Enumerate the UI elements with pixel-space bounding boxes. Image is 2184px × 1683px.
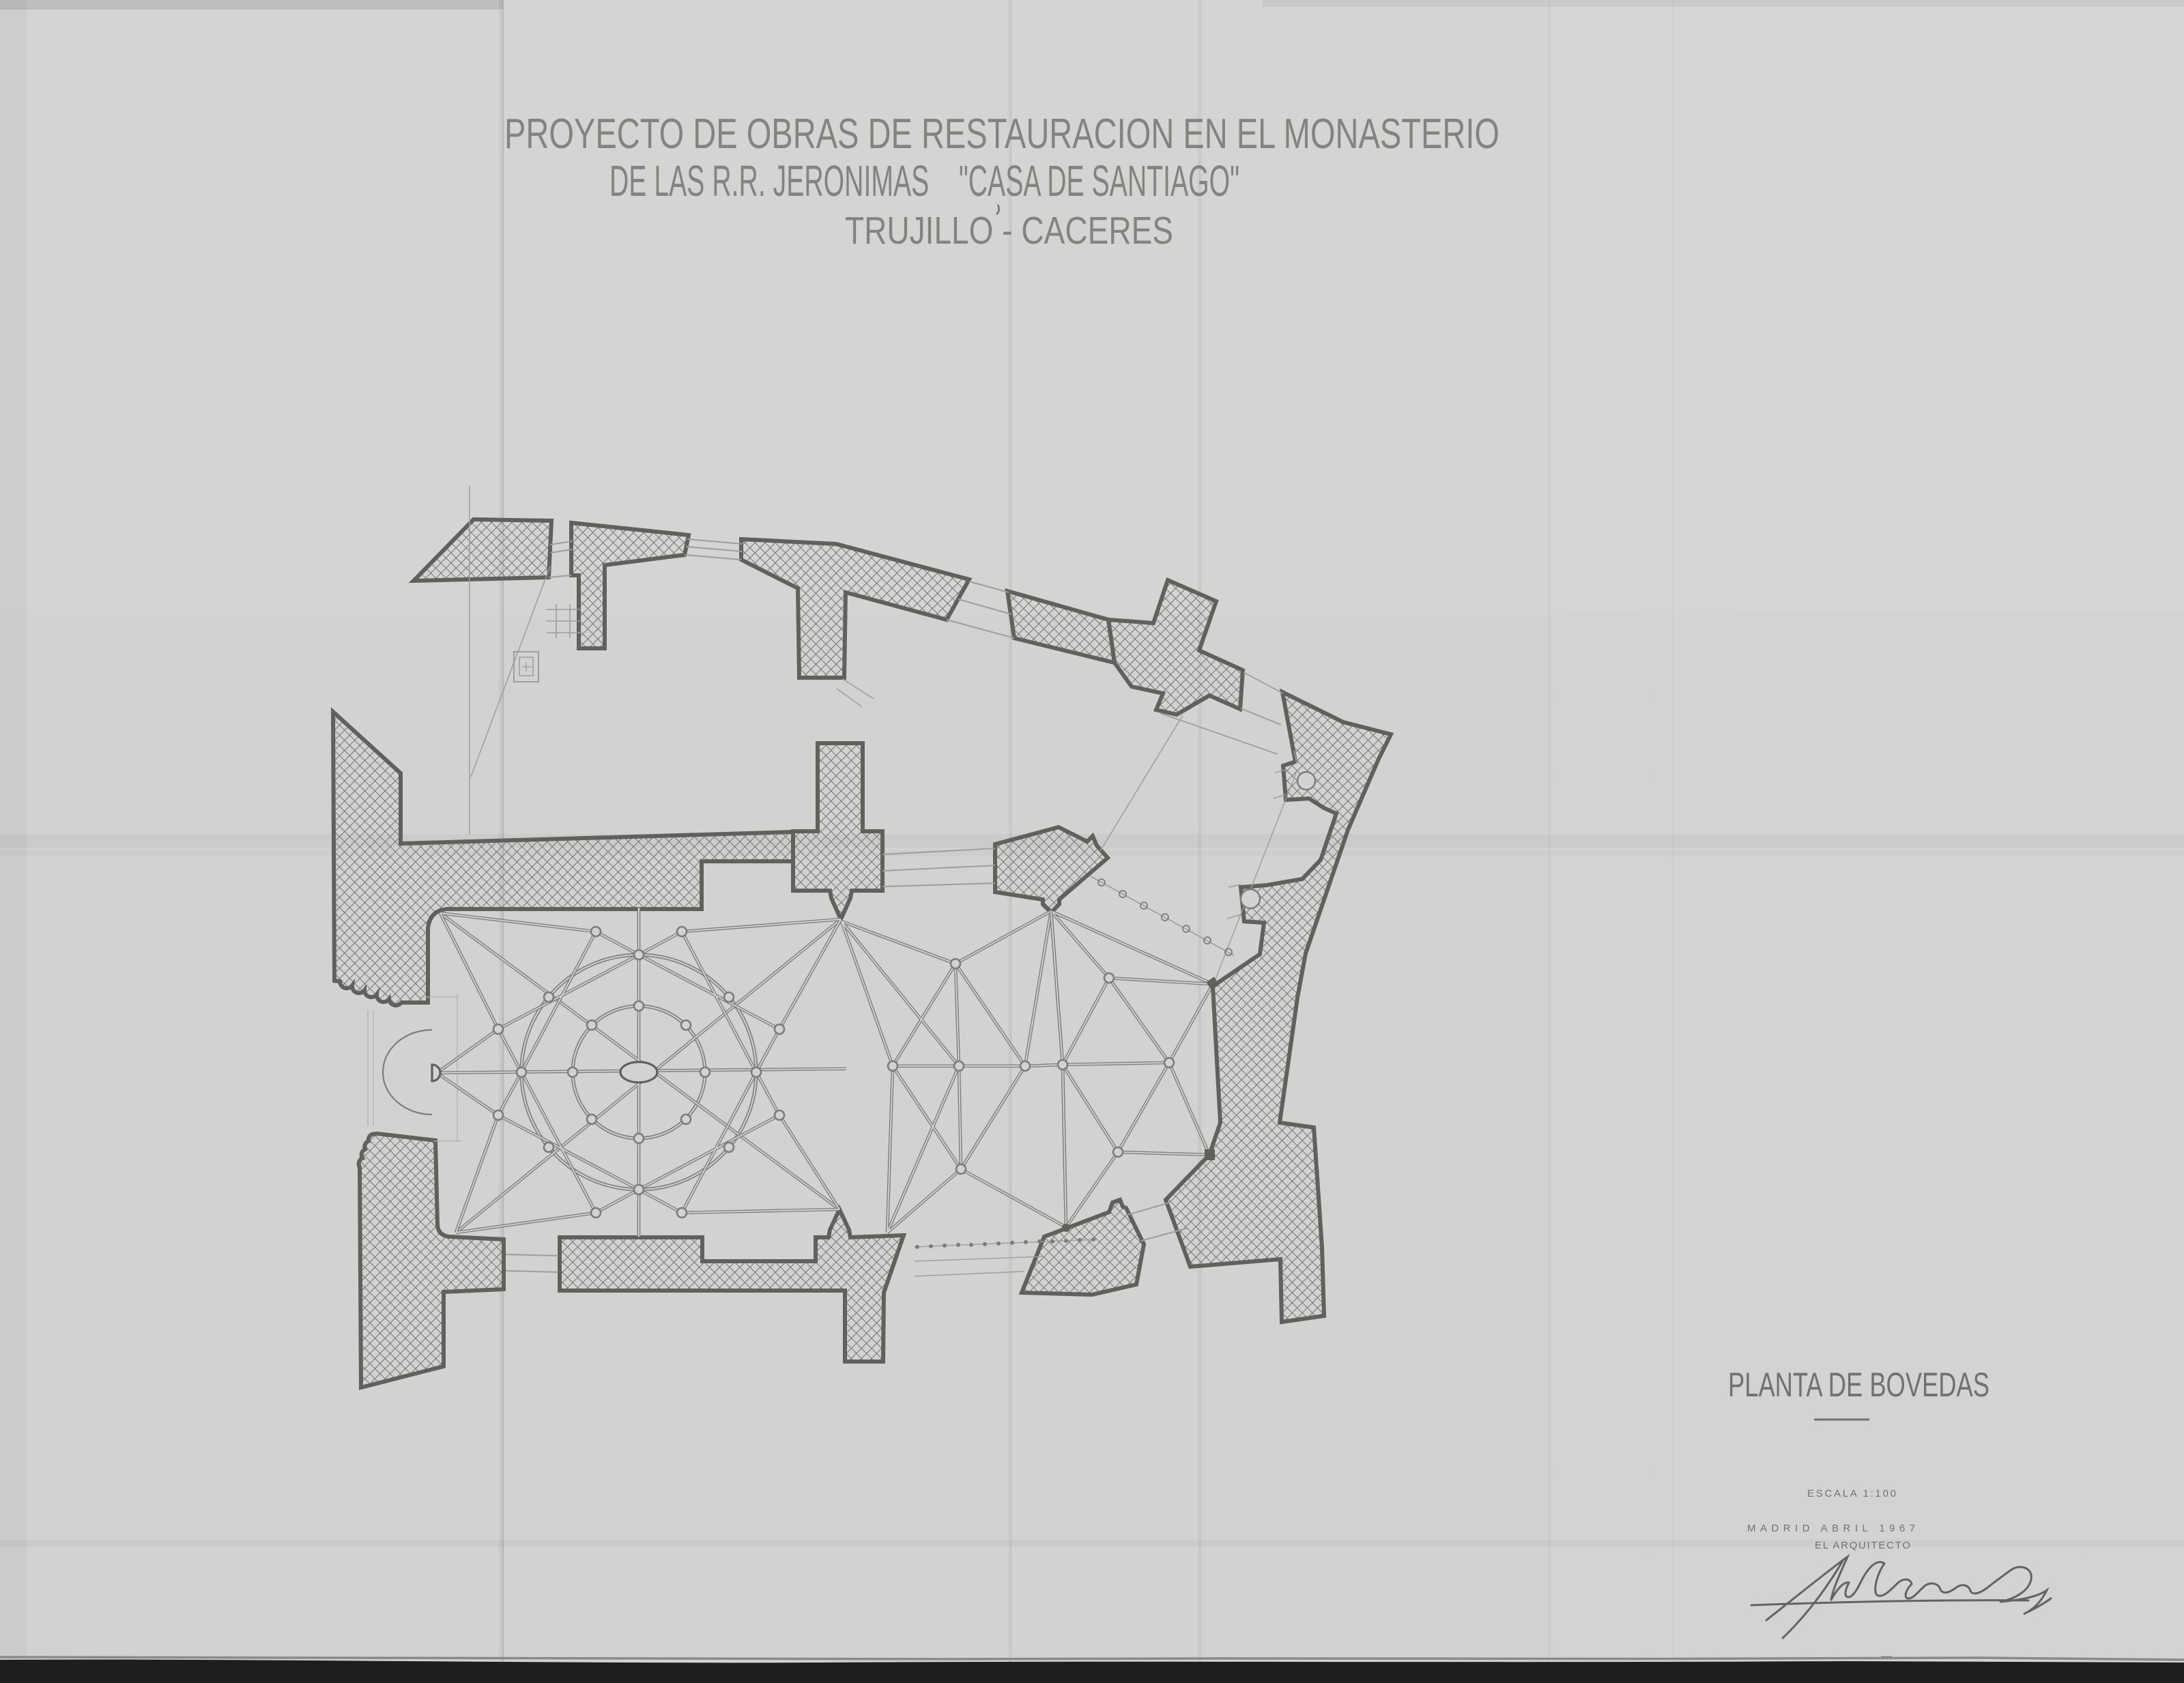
svg-text:EL ARQUITECTO: EL ARQUITECTO [1815,1540,1910,1551]
svg-text:TRUJILLO - CACERES: TRUJILLO - CACERES [845,209,1173,253]
svg-text:DE LAS R.R. JERONIMAS "CASA: DE LAS R.R. JERONIMAS "CASA DE SANTIAGO" [609,156,1239,205]
svg-text:PROYECTO DE OBRAS DE RESTAURA: PROYECTO DE OBRAS DE RESTAURACION EN EL … [504,111,1499,158]
svg-text:PLANTA DE BOVEDAS: PLANTA DE BOVEDAS [1728,1366,1989,1404]
svg-text:ESCALA 1:100: ESCALA 1:100 [1807,1488,1896,1499]
